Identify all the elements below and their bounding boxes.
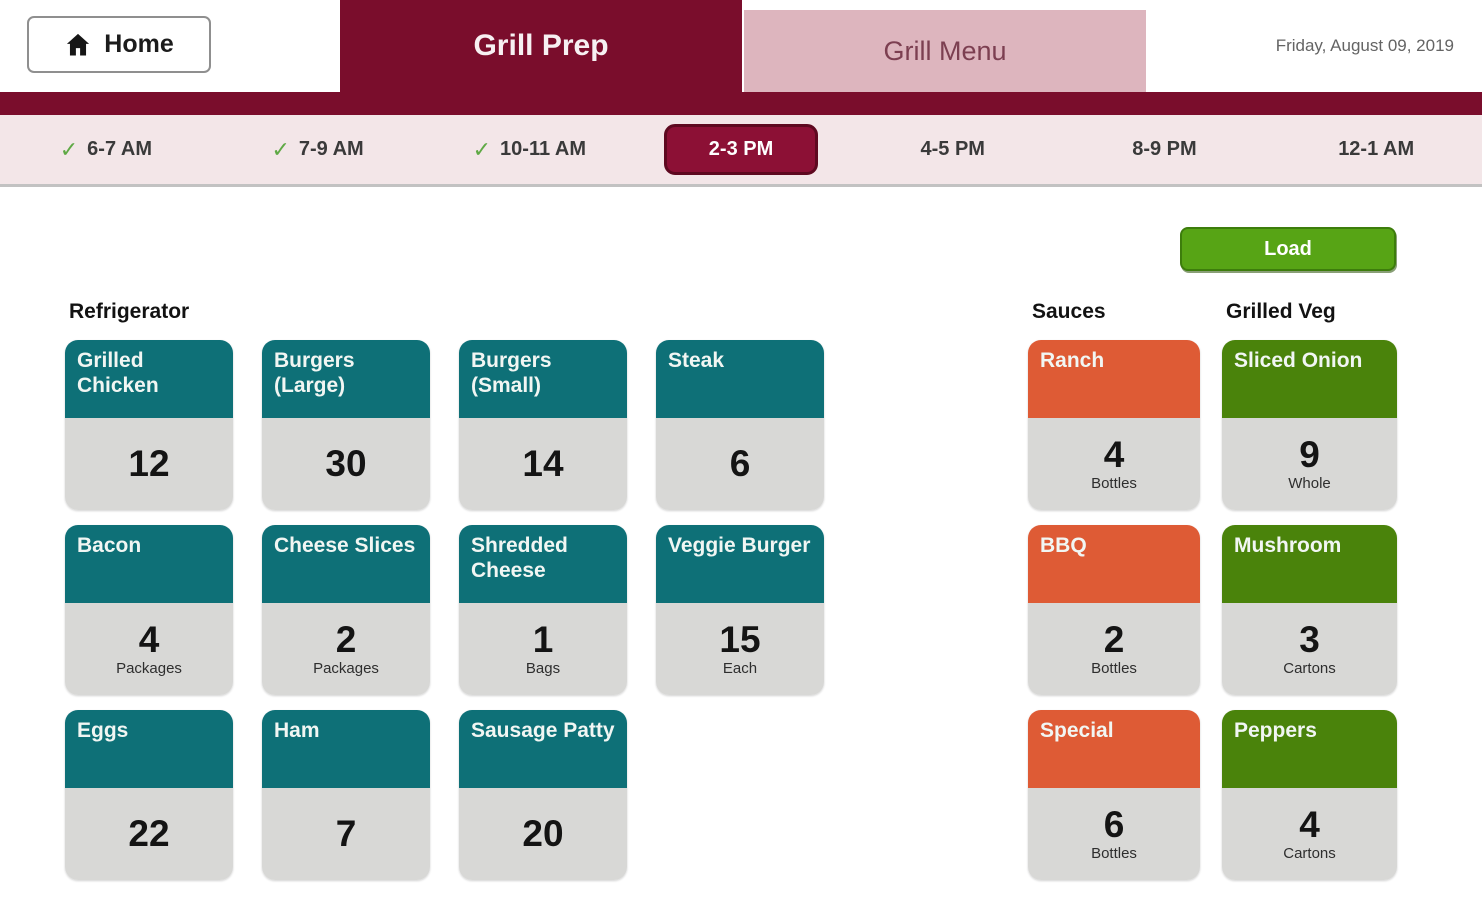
card-title: Grilled Chicken [65, 340, 233, 418]
card-quantity: 30 [325, 444, 366, 485]
card-unit: Bottles [1091, 660, 1137, 678]
card-title: Cheese Slices [262, 525, 430, 603]
sauces-grid: Ranch 4 Bottles BBQ 2 Bottles Special 6 … [1028, 340, 1200, 880]
card-quantity: 4 [1299, 805, 1320, 846]
card-quantity: 4 [1104, 435, 1125, 476]
inventory-card-steak[interactable]: Steak 6 [656, 340, 824, 510]
top-header: Home Grill Prep Grill Menu Friday, Augus… [0, 0, 1482, 92]
section-sauces: Sauces Ranch 4 Bottles BBQ 2 Bottles Spe… [1028, 300, 1200, 880]
card-unit: Packages [116, 660, 182, 678]
load-button[interactable]: Load [1180, 227, 1396, 271]
timeslot-10-11am[interactable]: ✓ 10-11 AM [423, 138, 635, 161]
section-title-sauces: Sauces [1032, 300, 1200, 324]
grilled-veg-grid: Sliced Onion 9 Whole Mushroom 3 Cartons … [1222, 340, 1397, 880]
timeslot-label: 2-3 PM [664, 124, 818, 175]
timeslot-12-1am[interactable]: 12-1 AM [1270, 138, 1482, 161]
inventory-card-sausage-patty[interactable]: Sausage Patty 20 [459, 710, 627, 880]
timeslot-label: 8-9 PM [1132, 138, 1196, 161]
home-button[interactable]: Home [27, 16, 211, 73]
check-icon: ✓ [271, 139, 289, 161]
inventory-card-sliced-onion[interactable]: Sliced Onion 9 Whole [1222, 340, 1397, 510]
inventory-card-cheese-slices[interactable]: Cheese Slices 2 Packages [262, 525, 430, 695]
inventory-card-bacon[interactable]: Bacon 4 Packages [65, 525, 233, 695]
inventory-card-ham[interactable]: Ham 7 [262, 710, 430, 880]
card-unit: Bottles [1091, 475, 1137, 493]
card-title: Eggs [65, 710, 233, 788]
card-quantity: 2 [336, 620, 357, 661]
card-title: Peppers [1222, 710, 1397, 788]
card-quantity: 7 [336, 814, 357, 855]
check-icon: ✓ [473, 139, 491, 161]
card-quantity: 15 [719, 620, 760, 661]
time-slot-bar: ✓ 6-7 AM ✓ 7-9 AM ✓ 10-11 AM 2-3 PM 4-5 … [0, 115, 1482, 187]
section-title-refrigerator: Refrigerator [69, 300, 824, 324]
card-unit: Each [723, 660, 757, 678]
inventory-card-peppers[interactable]: Peppers 4 Cartons [1222, 710, 1397, 880]
card-quantity: 9 [1299, 435, 1320, 476]
timeslot-label: 4-5 PM [921, 138, 985, 161]
card-title: Ranch [1028, 340, 1200, 418]
timeslot-7-9am[interactable]: ✓ 7-9 AM [212, 138, 424, 161]
section-grilled-veg: Grilled Veg Sliced Onion 9 Whole Mushroo… [1222, 300, 1397, 880]
card-title: Burgers (Large) [262, 340, 430, 418]
card-quantity: 2 [1104, 620, 1125, 661]
inventory-card-shredded-cheese[interactable]: Shredded Cheese 1 Bags [459, 525, 627, 695]
timeslot-6-7am[interactable]: ✓ 6-7 AM [0, 138, 212, 161]
current-date: Friday, August 09, 2019 [1154, 0, 1454, 92]
card-unit: Bags [526, 660, 560, 678]
card-unit: Cartons [1283, 660, 1336, 678]
inventory-card-burgers-large[interactable]: Burgers (Large) 30 [262, 340, 430, 510]
card-title: Burgers (Small) [459, 340, 627, 418]
card-title: Mushroom [1222, 525, 1397, 603]
home-button-label: Home [104, 30, 173, 59]
inventory-card-grilled-chicken[interactable]: Grilled Chicken 12 [65, 340, 233, 510]
home-icon [64, 31, 92, 59]
card-title: Special [1028, 710, 1200, 788]
inventory-card-veggie-burger[interactable]: Veggie Burger 15 Each [656, 525, 824, 695]
section-refrigerator: Refrigerator Grilled Chicken 12 Burgers … [65, 300, 824, 880]
timeslot-label: 10-11 AM [500, 138, 586, 161]
card-quantity: 3 [1299, 620, 1320, 661]
inventory-card-ranch[interactable]: Ranch 4 Bottles [1028, 340, 1200, 510]
inventory-card-special[interactable]: Special 6 Bottles [1028, 710, 1200, 880]
inventory-card-eggs[interactable]: Eggs 22 [65, 710, 233, 880]
card-unit: Bottles [1091, 845, 1137, 863]
card-quantity: 12 [128, 444, 169, 485]
card-unit: Packages [313, 660, 379, 678]
inventory-card-bbq[interactable]: BBQ 2 Bottles [1028, 525, 1200, 695]
card-quantity: 4 [139, 620, 160, 661]
card-title: Steak [656, 340, 824, 418]
timeslot-label: 6-7 AM [87, 138, 152, 161]
inventory-card-mushroom[interactable]: Mushroom 3 Cartons [1222, 525, 1397, 695]
timeslot-label: 7-9 AM [299, 138, 364, 161]
tab-grill-menu[interactable]: Grill Menu [744, 10, 1146, 92]
timeslot-2-3pm-selected[interactable]: 2-3 PM [635, 124, 847, 175]
check-icon: ✓ [60, 139, 78, 161]
card-quantity: 22 [128, 814, 169, 855]
card-title: Sliced Onion [1222, 340, 1397, 418]
card-quantity: 6 [730, 444, 751, 485]
card-quantity: 6 [1104, 805, 1125, 846]
card-title: Bacon [65, 525, 233, 603]
card-title: Shredded Cheese [459, 525, 627, 603]
card-quantity: 14 [522, 444, 563, 485]
card-quantity: 1 [533, 620, 554, 661]
card-title: Sausage Patty [459, 710, 627, 788]
timeslot-4-5pm[interactable]: 4-5 PM [847, 138, 1059, 161]
header-divider-bar [0, 92, 1482, 115]
card-title: Ham [262, 710, 430, 788]
card-title: BBQ [1028, 525, 1200, 603]
timeslot-8-9pm[interactable]: 8-9 PM [1059, 138, 1271, 161]
timeslot-label: 12-1 AM [1338, 138, 1414, 161]
card-quantity: 20 [522, 814, 563, 855]
card-unit: Whole [1288, 475, 1331, 493]
card-unit: Cartons [1283, 845, 1336, 863]
card-title: Veggie Burger [656, 525, 824, 603]
section-title-grilled-veg: Grilled Veg [1226, 300, 1397, 324]
inventory-card-burgers-small[interactable]: Burgers (Small) 14 [459, 340, 627, 510]
tab-grill-prep[interactable]: Grill Prep [340, 0, 742, 92]
refrigerator-grid: Grilled Chicken 12 Burgers (Large) 30 Bu… [65, 340, 824, 880]
